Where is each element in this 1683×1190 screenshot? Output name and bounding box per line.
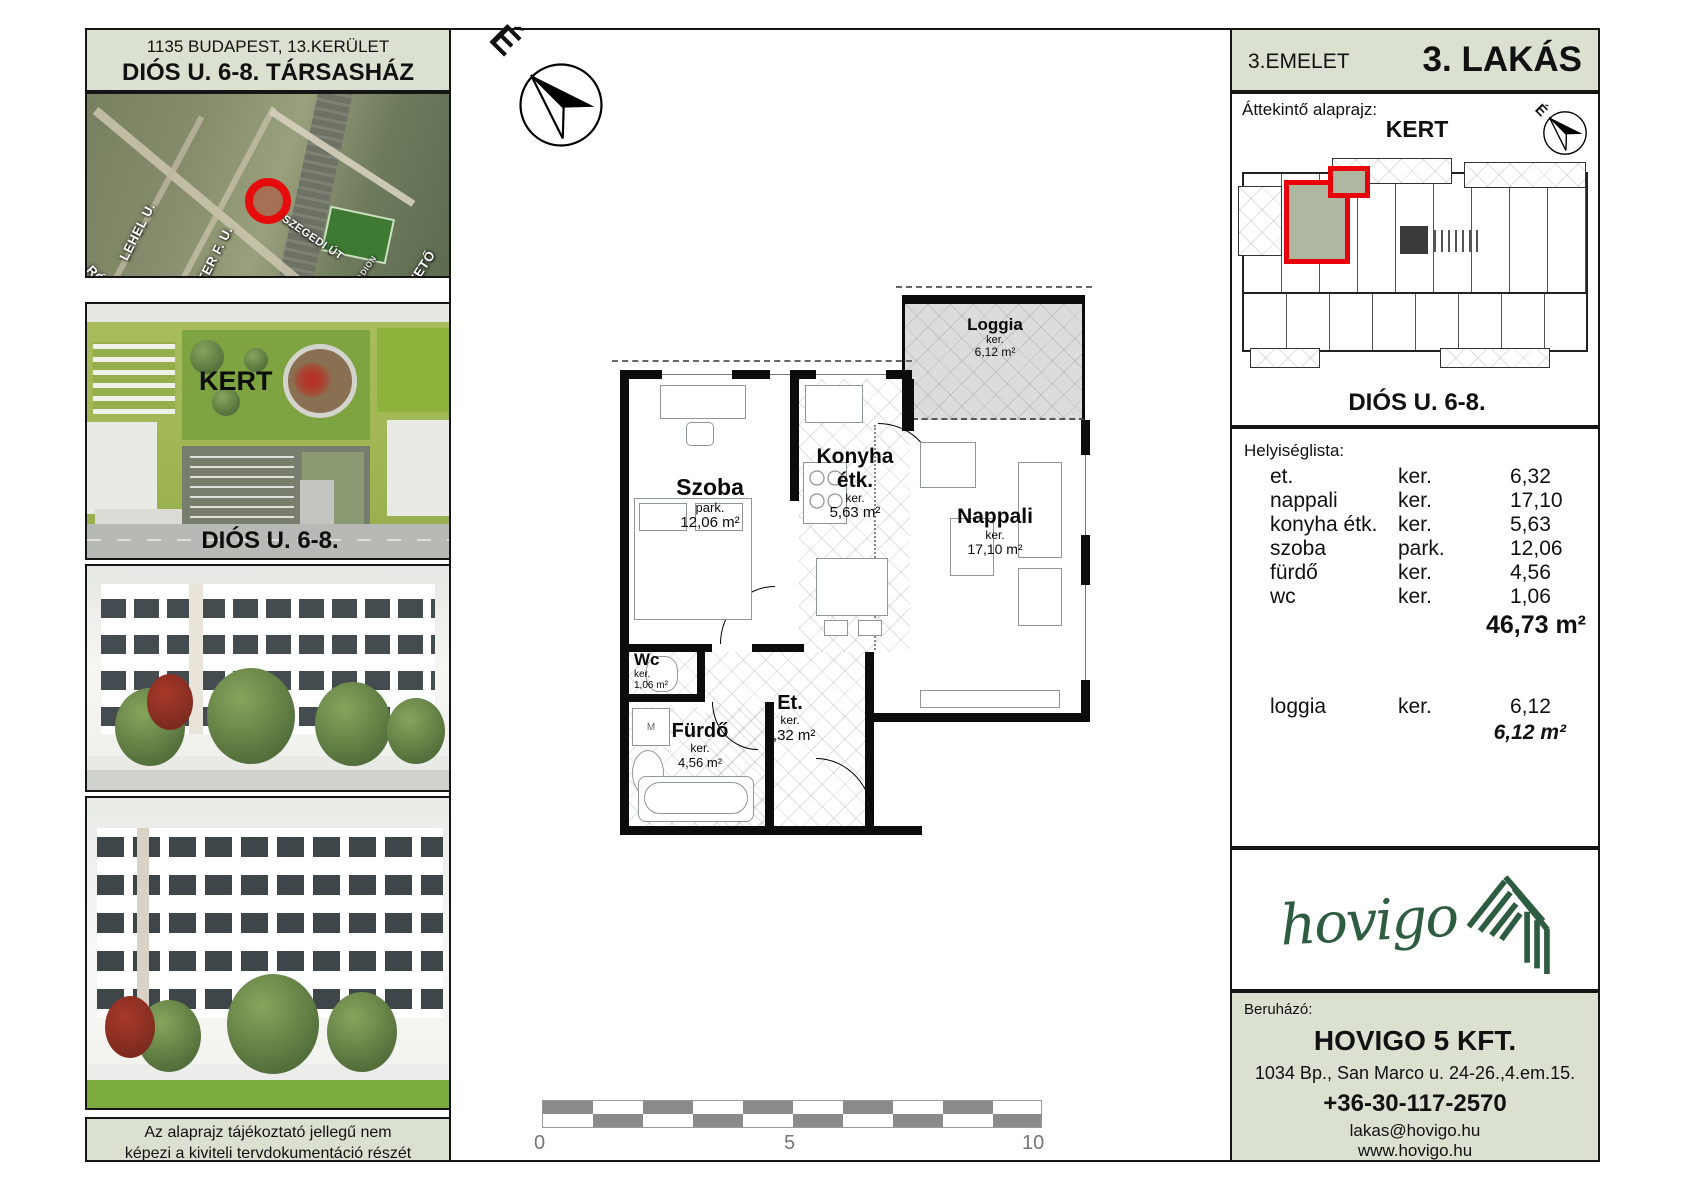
project-header: 1135 BUDAPEST, 13.KERÜLET DIÓS U. 6-8. T… — [85, 28, 451, 92]
developer-phone: +36-30-117-2570 — [1232, 1090, 1598, 1118]
red-tree — [147, 674, 193, 730]
hovigo-logo: hovigo — [1232, 850, 1600, 991]
developer-email: lakas@hovigo.hu — [1232, 1121, 1598, 1141]
room-label-et: Et. ker. 6,32 m² — [745, 692, 835, 745]
project-address: 1135 BUDAPEST, 13.KERÜLET — [87, 37, 449, 57]
total-area: 46,73 m² — [1486, 611, 1586, 640]
project-title: DIÓS U. 6-8. TÁRSASHÁZ — [87, 59, 449, 87]
room-list-row: szoba park. 12,06 — [1232, 537, 1598, 561]
row-tenure: ker. — [1398, 585, 1510, 609]
row-name: nappali — [1270, 489, 1398, 513]
window — [662, 370, 732, 379]
mini-elevator — [1400, 226, 1428, 254]
scale-label-0: 0 — [534, 1132, 545, 1155]
overview-north-arrow-icon — [1542, 110, 1588, 156]
row-area: 5,63 — [1510, 513, 1551, 537]
wall-szoba-konyha — [790, 379, 799, 501]
hovigo-house-icon — [1462, 870, 1554, 974]
north-arrow-icon — [517, 61, 605, 149]
row-area: 6,12 — [1510, 695, 1551, 719]
row-name: loggia — [1270, 695, 1398, 719]
site-parking-stripes — [93, 342, 175, 414]
site-red-shrubs — [292, 363, 332, 397]
loggia-total-area: 6,12 m² — [1494, 721, 1566, 745]
disclaimer: Az alaprajz tájékoztató jellegű nem képe… — [85, 1117, 451, 1162]
row-area: 17,10 — [1510, 489, 1563, 513]
row-tenure: ker. — [1398, 695, 1510, 719]
armchair — [920, 442, 976, 488]
road-line — [96, 115, 205, 278]
room-list-row: et. ker. 6,32 — [1232, 465, 1598, 489]
render-accent-strip — [137, 828, 149, 1018]
row-area: 1,06 — [1510, 585, 1551, 609]
mini-plan-lower-wing — [1242, 292, 1588, 352]
room-list-title: Helyiséglista: — [1244, 441, 1344, 461]
highlighted-unit-notch — [1328, 166, 1370, 198]
chair — [686, 422, 714, 446]
loggia-overhang-dash — [896, 286, 1092, 288]
disclaimer-line1: Az alaprajz tájékoztató jellegű nem — [87, 1123, 449, 1144]
row-name: wc — [1270, 585, 1398, 609]
room-label-nappali: Nappali ker. 17,10 m² — [930, 505, 1060, 558]
hovigo-wordmark: hovigo — [1278, 884, 1458, 958]
room-label-szoba: Szoba park. 12,06 m² — [645, 475, 775, 532]
mini-balcony-left — [1238, 186, 1282, 256]
bathtub-inner — [644, 782, 748, 814]
window — [770, 370, 790, 379]
room-list-row: nappali ker. 17,10 — [1232, 489, 1598, 513]
chair — [824, 620, 848, 636]
wall-bottom — [620, 826, 922, 835]
overview-street-label: DIÓS U. 6-8. — [1232, 389, 1600, 417]
developer-panel: Beruházó: HOVIGO 5 KFT. 1034 Bp., San Ma… — [1230, 991, 1600, 1162]
wall-nappali-bottom — [874, 713, 1090, 722]
site-plan: KERT DIÓS U. 6-8. — [85, 302, 451, 560]
row-tenure: ker. — [1398, 489, 1510, 513]
room-label-loggia: Loggia ker. 6,12 m² — [955, 315, 1035, 360]
sofa — [1018, 568, 1062, 626]
row-name: szoba — [1270, 537, 1398, 561]
developer-website: www.hovigo.hu — [1232, 1141, 1598, 1161]
window — [816, 370, 886, 379]
site-kert-label: KERT — [199, 366, 273, 397]
mini-stairs — [1434, 230, 1478, 252]
overhang-dash — [612, 360, 912, 362]
room-list-row: konyha étk. ker. 5,63 — [1232, 513, 1598, 537]
logo-panel: hovigo — [1230, 848, 1600, 991]
row-area: 12,06 — [1510, 537, 1563, 561]
scale-label-5: 5 — [784, 1132, 795, 1155]
overview-mini-plan — [1240, 156, 1592, 386]
location-map: LEHEL U. RÓBERT KÁROLY KRT REITTER F. U.… — [85, 92, 451, 278]
building-render-photo-1 — [85, 564, 451, 792]
scale-bar — [542, 1100, 1042, 1128]
row-tenure: ker. — [1398, 465, 1510, 489]
floor-label: 3.EMELET — [1248, 50, 1350, 74]
property-datasheet: 1135 BUDAPEST, 13.KERÜLET DIÓS U. 6-8. T… — [0, 0, 1683, 1190]
room-label-furdo: Fürdő ker. 4,56 m² — [650, 720, 750, 770]
developer-address: 1034 Bp., San Marco u. 24-26.,4.em.15. — [1232, 1063, 1598, 1084]
scale-label-10: 10 — [1022, 1132, 1044, 1155]
street-label: LEHEL U. — [116, 200, 158, 263]
mini-balcony-bottom-right — [1440, 348, 1550, 368]
developer-name: HOVIGO 5 KFT. — [1232, 1025, 1598, 1057]
wall-left — [620, 370, 629, 835]
site-building-right — [387, 420, 449, 516]
bathtub — [638, 776, 754, 822]
overview-plan-panel: Áttekintő alaprajz: KERT É DIÓS U. 6-8. — [1230, 92, 1600, 427]
wall-wc-bath — [620, 694, 705, 702]
building-render-photo-2 — [85, 796, 451, 1110]
red-tree — [105, 996, 155, 1058]
site-building-footprint — [182, 446, 370, 536]
desk — [660, 385, 746, 419]
row-name: fürdő — [1270, 561, 1398, 585]
chair — [858, 620, 882, 636]
site-building-left — [87, 422, 157, 514]
room-label-wc: Wc ker. 1,06 m² — [630, 650, 696, 691]
site-top-road — [87, 304, 451, 322]
site-lawn-right — [377, 328, 449, 412]
disclaimer-line2: képezi a kiviteli tervdokumentáció részé… — [87, 1144, 449, 1162]
unit-header: 3.EMELET 3. LAKÁS — [1230, 28, 1600, 92]
room-list-panel: Helyiséglista: et. ker. 6,32 nappali ker… — [1230, 427, 1600, 848]
wall-corridor-2 — [752, 644, 804, 652]
site-roof-parking — [190, 454, 294, 528]
row-name: et. — [1270, 465, 1398, 489]
wall-konyha-corner — [902, 379, 914, 431]
mini-balcony-top-right — [1464, 162, 1586, 188]
room-list-row: wc ker. 1,06 — [1232, 585, 1598, 609]
row-tenure: ker. — [1398, 513, 1510, 537]
kitchen-sink — [805, 385, 863, 423]
row-name: konyha étk. — [1270, 513, 1398, 537]
scale-bar-row2 — [543, 1114, 1041, 1127]
mini-balcony-bottom — [1250, 348, 1320, 368]
room-list-row: fürdő ker. 4,56 — [1232, 561, 1598, 585]
scale-bar-row1 — [543, 1101, 1041, 1114]
unit-label: 3. LAKÁS — [1423, 40, 1582, 80]
row-tenure: park. — [1398, 537, 1510, 561]
site-street-label: DIÓS U. 6-8. — [87, 527, 451, 555]
developer-label: Beruházó: — [1244, 1001, 1312, 1018]
site-core-block — [300, 480, 334, 528]
window — [1081, 585, 1090, 680]
floor-plan: M Loggia ker. 6,12 m² Szoba park. 12,06 … — [620, 290, 1090, 836]
tv-board — [920, 690, 1060, 708]
dining-table — [816, 558, 888, 616]
row-tenure: ker. — [1398, 561, 1510, 585]
row-area: 6,32 — [1510, 465, 1551, 489]
row-area: 4,56 — [1510, 561, 1551, 585]
window — [1081, 455, 1090, 535]
room-label-konyha: Konyha étk. ker. 5,63 m² — [805, 445, 905, 522]
site-playground — [283, 344, 357, 418]
loggia-row: loggia ker. 6,12 — [1232, 695, 1598, 719]
